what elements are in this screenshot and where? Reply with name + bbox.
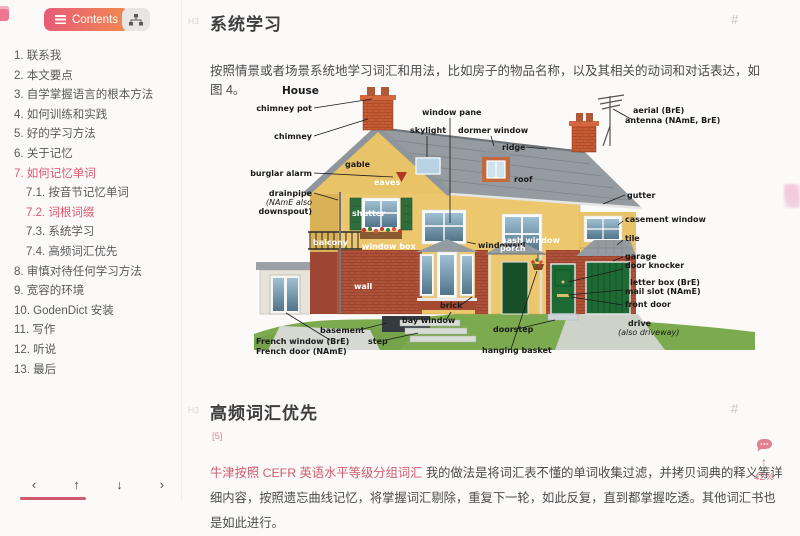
toc-item[interactable]: 5. 好的学习方法 — [14, 125, 180, 145]
figure-label: aerial (BrE) — [633, 106, 684, 115]
label-leader-line — [314, 119, 368, 136]
figure-label: garage — [625, 252, 657, 261]
figure-label: chimney — [274, 132, 313, 141]
figure-label: basement — [320, 326, 365, 335]
heading-anchor-icon[interactable]: # — [731, 12, 738, 27]
toc-item[interactable]: 9. 宽容的环境 — [14, 282, 180, 302]
reading-progress-percent: 42% — [754, 472, 774, 483]
figure-label: hanging basket — [482, 346, 552, 355]
figure-label: French window (BrE) — [256, 337, 349, 346]
scroll-to-top-icon[interactable]: ↑ — [761, 455, 767, 469]
figure-label: window pane — [422, 108, 482, 117]
toc-item[interactable]: 3. 自学掌握语言的根本方法 — [14, 86, 180, 106]
toc-item[interactable]: 11. 写作 — [14, 321, 180, 341]
figure-label: shutter — [352, 209, 385, 218]
figure-label: ridge — [502, 143, 526, 152]
toc-item[interactable]: 2. 本文要点 — [14, 67, 180, 87]
figure-label: casement window — [625, 215, 706, 224]
figure-label: (NAmE also — [266, 198, 312, 207]
figure-label: letter box (BrE) — [630, 278, 700, 287]
footnote-ref[interactable]: [5] — [212, 431, 223, 442]
figure-label: window box — [362, 242, 416, 251]
house-vocabulary-figure: Housechimney potchimneyburglar alarmdrai… — [250, 82, 770, 368]
toc-item[interactable]: 7.1. 按音节记忆单词 — [14, 184, 180, 204]
figure-label: burglar alarm — [250, 169, 312, 178]
list-icon — [55, 15, 66, 24]
nav-left-icon[interactable]: ‹ — [24, 477, 44, 492]
figure-label: chimney pot — [256, 104, 312, 113]
contents-button[interactable]: Contents — [44, 8, 129, 31]
toc-item[interactable]: 7.4. 高频词汇优先 — [14, 243, 180, 263]
figure-label: porch — [500, 244, 526, 253]
figure-label: balcony — [313, 238, 349, 247]
section-heading-row: H3 高频词汇优先 # — [210, 399, 755, 424]
toc-item[interactable]: 7.2. 词根词缀 — [14, 204, 180, 224]
figure-label: mail slot (NAmE) — [625, 287, 701, 296]
toc-item[interactable]: 1. 联系我 — [14, 47, 180, 67]
figure-label: skylight — [410, 126, 446, 135]
toc-item[interactable]: 7. 如何记忆单词 — [14, 165, 180, 185]
cefr-wordlist-link[interactable]: 牛津按照 CEFR 英语水平等级分组词汇 — [210, 466, 422, 480]
toc-item[interactable]: 6. 关于记忆 — [14, 145, 180, 165]
toc-item[interactable]: 12. 听说 — [14, 341, 180, 361]
figure-label: eaves — [374, 178, 400, 187]
figure-label: wall — [354, 282, 373, 291]
nav-down-icon[interactable]: ↓ — [109, 477, 129, 492]
figure-label: antenna (NAmE, BrE) — [625, 116, 720, 125]
toc-item[interactable]: 7.3. 系统学习 — [14, 223, 180, 243]
heading-anchor-icon[interactable]: # — [731, 401, 738, 416]
toc-item[interactable]: 10. GodenDict 安装 — [14, 302, 180, 322]
pinned-tab-icon[interactable] — [0, 6, 9, 21]
figure-label: House — [282, 85, 319, 97]
sidebar-divider — [181, 0, 182, 500]
figure-label: brick — [440, 301, 463, 310]
page-title-systematic-learning: 系统学习 — [210, 15, 282, 34]
figure-label: gable — [345, 160, 371, 169]
figure-label: drive — [628, 319, 652, 328]
heading-level-marker: H3 — [188, 405, 199, 415]
section2-paragraph: 牛津按照 CEFR 英语水平等级分组词汇 我的做法是将词汇表不懂的单词收集过滤，… — [210, 461, 786, 536]
table-of-contents: 1. 联系我2. 本文要点3. 自学掌握语言的根本方法4. 如何训练和实践5. … — [14, 47, 180, 380]
figure-label: French door (NAmE) — [256, 347, 347, 356]
heading-level-marker: H3 — [188, 16, 199, 26]
figure-label: bay window — [402, 316, 456, 325]
page-title-high-frequency: 高频词汇优先 — [210, 404, 318, 423]
figure-label: drainpipe — [269, 189, 313, 198]
sitemap-icon — [129, 14, 143, 26]
house-illustration: Housechimney potchimneyburglar alarmdrai… — [250, 82, 770, 368]
section-heading-row: H3 系统学习 # — [210, 10, 755, 35]
figure-label: dormer window — [458, 126, 529, 135]
sidebar-footer-nav: ‹↑↓› — [24, 477, 172, 492]
decorative-flower — [784, 184, 800, 208]
figure-label: door knocker — [625, 261, 684, 270]
toc-item[interactable]: 13. 最后 — [14, 361, 180, 381]
toc-item[interactable]: 8. 审慎对待任何学习方法 — [14, 263, 180, 283]
nav-up-icon[interactable]: ↑ — [67, 477, 87, 492]
figure-label: step — [368, 337, 388, 346]
figure-label: front door — [625, 300, 671, 309]
toc-item[interactable]: 4. 如何训练和实践 — [14, 106, 180, 126]
contents-button-label: Contents — [72, 14, 118, 26]
figure-label: tile — [625, 234, 640, 243]
figure-label: gutter — [627, 191, 655, 200]
nav-right-icon[interactable]: › — [152, 477, 172, 492]
figure-label: doorstep — [493, 325, 534, 334]
graph-view-button[interactable] — [122, 8, 150, 31]
figure-label: roof — [514, 175, 533, 184]
reading-widget: ↑ 42% — [746, 438, 782, 483]
comments-icon[interactable] — [756, 438, 773, 452]
figure-label: downspout) — [259, 207, 312, 216]
figure-label: (also driveway) — [618, 328, 679, 337]
